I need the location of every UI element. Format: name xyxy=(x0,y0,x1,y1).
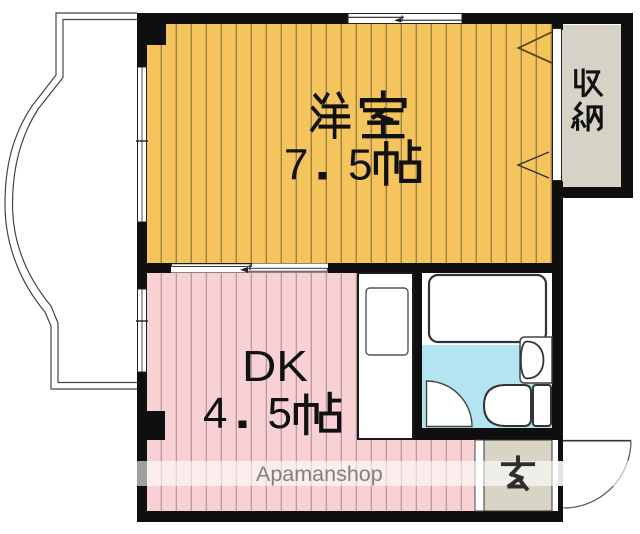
svg-text:DK: DK xyxy=(242,342,308,391)
svg-text:4: 4 xyxy=(203,389,227,438)
svg-text:5: 5 xyxy=(348,141,372,190)
svg-text:Apamanshop: Apamanshop xyxy=(256,462,383,486)
svg-text:5: 5 xyxy=(268,389,292,438)
svg-text:7: 7 xyxy=(284,141,308,190)
